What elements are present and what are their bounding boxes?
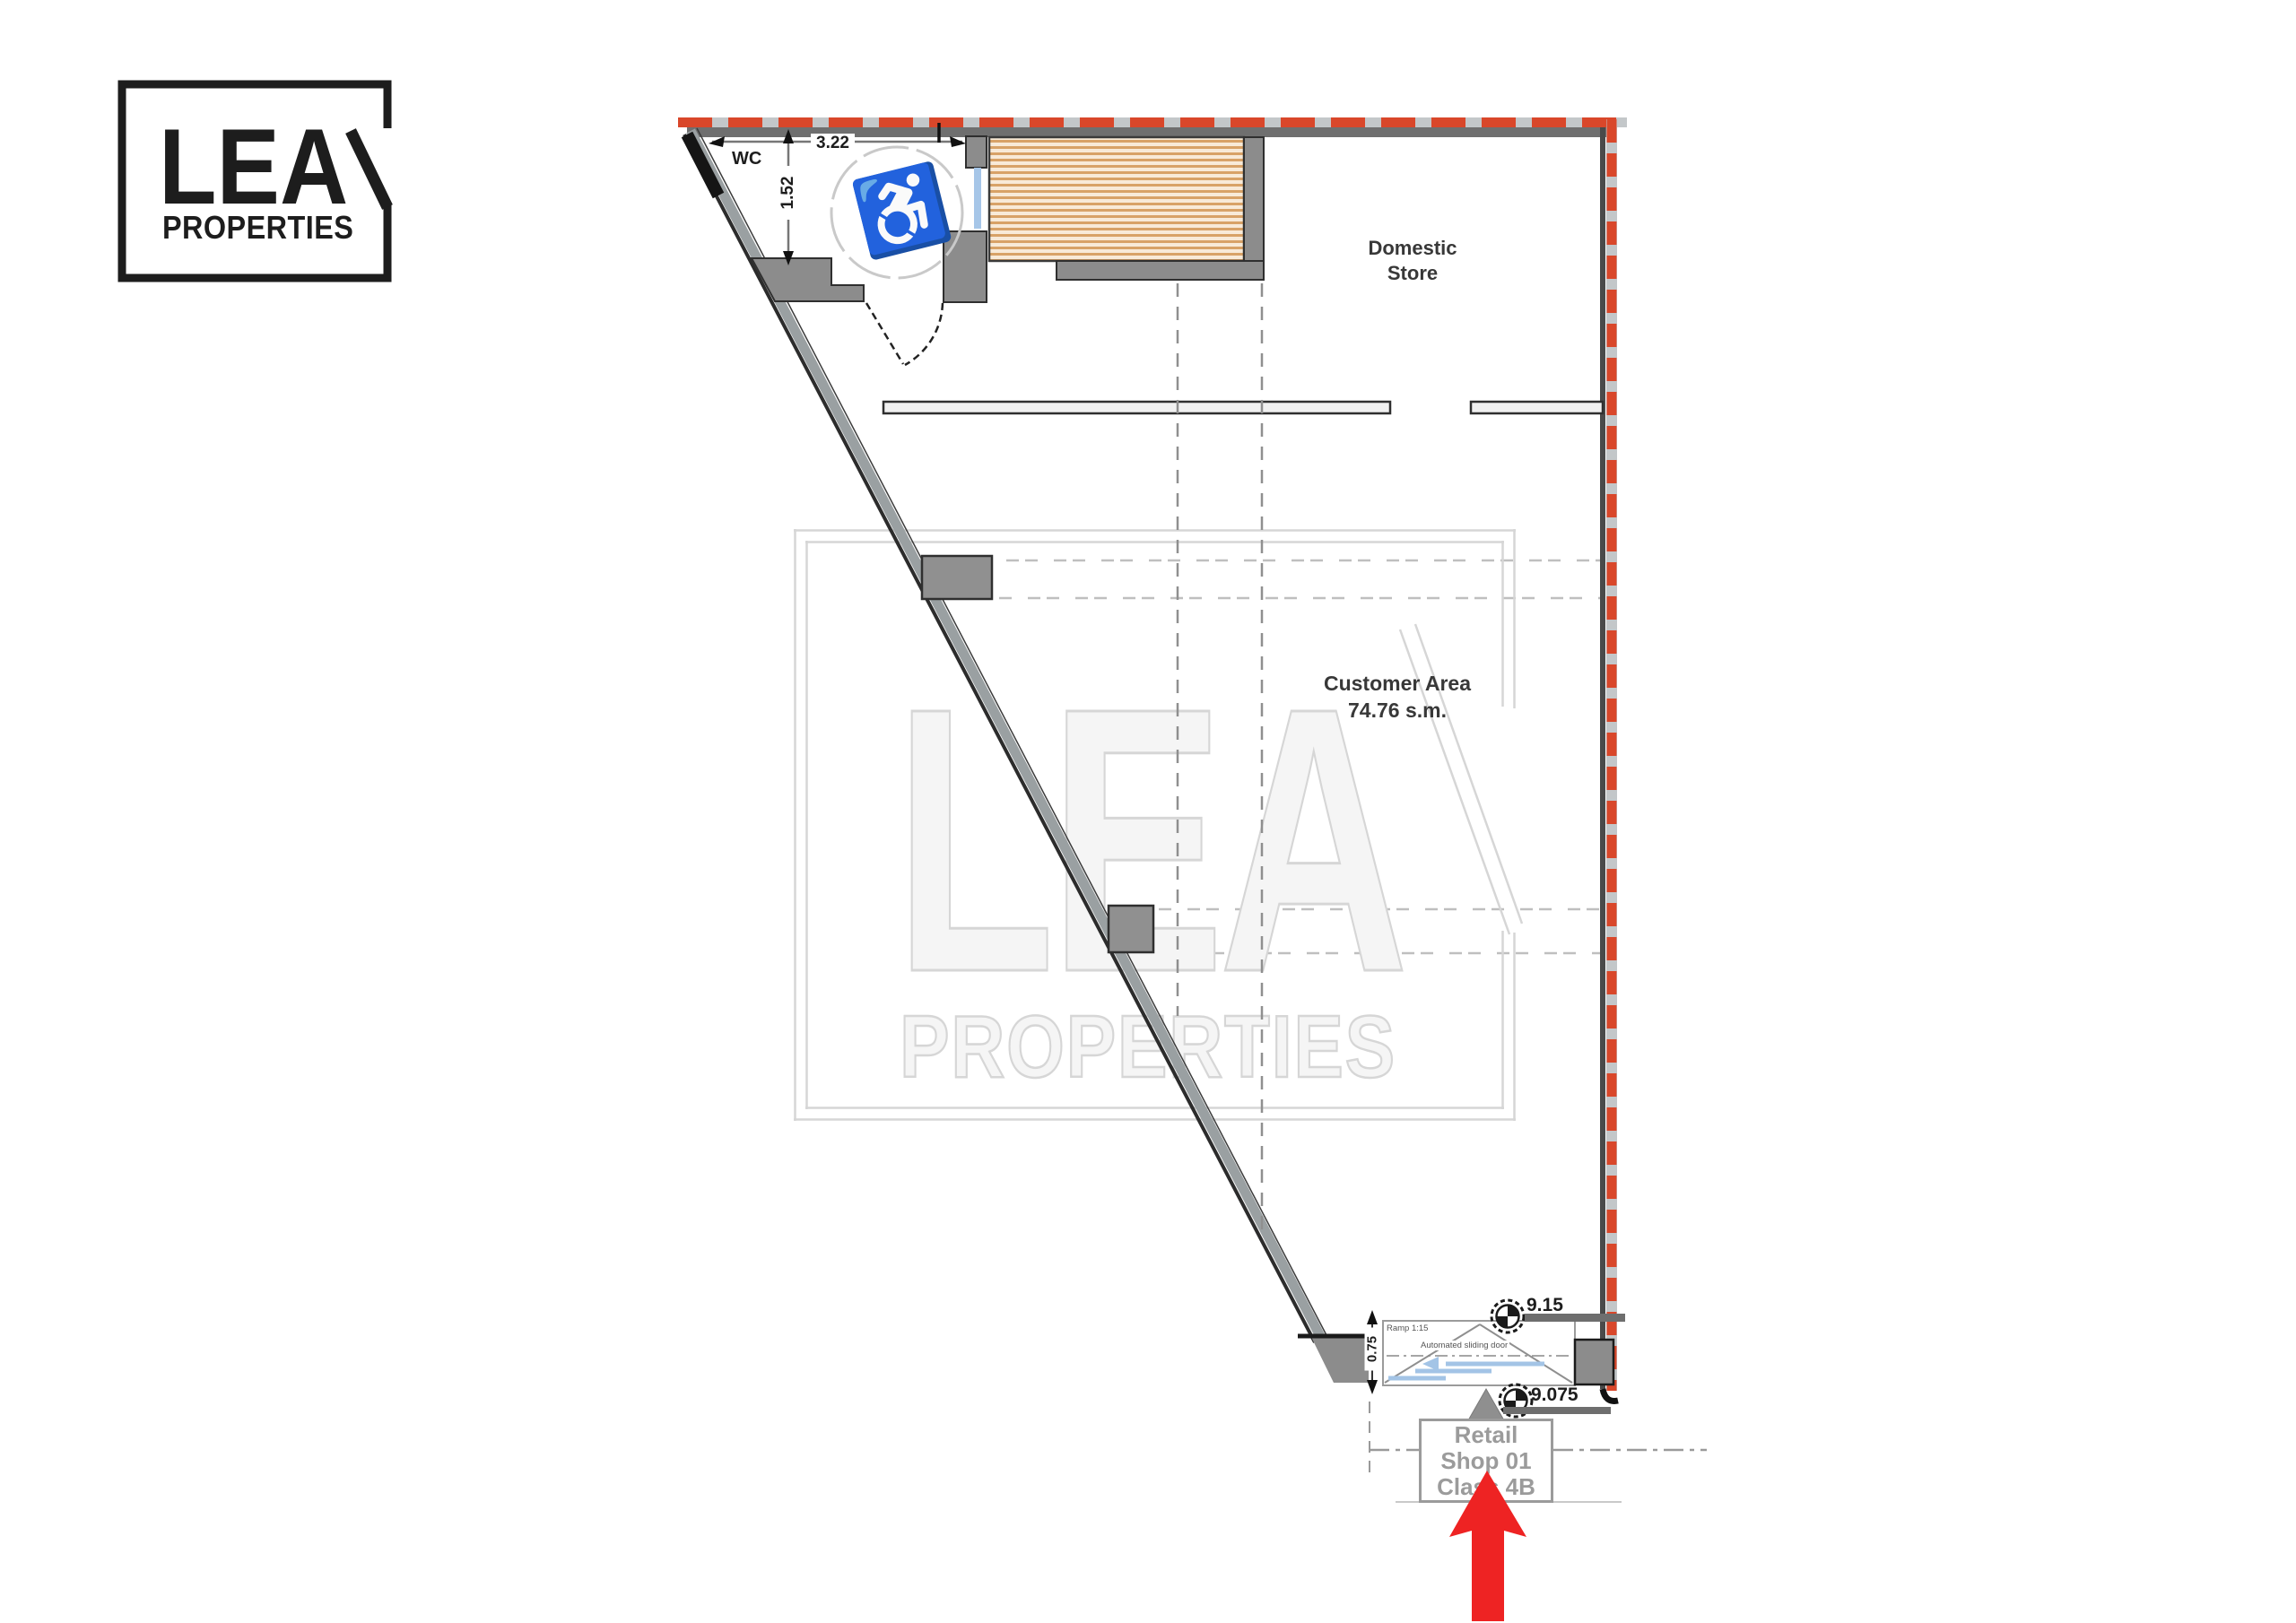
dim-lines-wc [709, 123, 966, 265]
boundary-dashes-bottom [1370, 1402, 1707, 1502]
boundary-right [1600, 119, 1618, 1401]
wc-width-dimension: 3.22 [811, 134, 855, 153]
dim-entrance [1367, 1310, 1378, 1394]
wc-depth-dimension: 1.52 [778, 166, 798, 220]
partition-wall [883, 402, 1603, 413]
watermark-brand-text: LEA [894, 653, 1403, 1029]
stair-hatch [989, 137, 1244, 261]
level-marker-lower [1500, 1384, 1611, 1417]
wc-glazing [974, 168, 981, 229]
unit-label-line2: Shop 01 [1422, 1448, 1551, 1474]
wc-room-label: WC [732, 149, 761, 169]
unit-label-line3: Class 4B [1422, 1474, 1551, 1500]
stair-walls [1057, 137, 1264, 280]
wheelchair-icon: ♿ [847, 163, 956, 259]
turning-circle [831, 147, 962, 278]
level-value-upper: 9.15 [1526, 1295, 1563, 1316]
domestic-store-label: Domestic Store [1335, 236, 1490, 286]
watermark-tagline-text: PROPERTIES [900, 1002, 1396, 1090]
domestic-store-line1: Domestic [1335, 236, 1490, 261]
level-marker-upper [1492, 1300, 1625, 1332]
watermark: LEA PROPERTIES [794, 529, 1516, 1121]
floorplan-page: LEA PROPERTIES [0, 0, 2296, 1623]
logo-brand-text: LEA [159, 113, 348, 221]
entrance [1383, 1321, 1613, 1385]
level-value-lower: 9.075 [1531, 1384, 1578, 1406]
sliding-door-leaves [1388, 1364, 1544, 1378]
ramp-label: Ramp 1:15 [1387, 1324, 1428, 1333]
logo-tagline-text: PROPERTIES [162, 212, 353, 244]
unit-label-box: Retail Shop 01 Class 4B [1419, 1419, 1553, 1503]
entrance-width-dimension: 0.75 [1365, 1328, 1380, 1371]
wc-walls [752, 136, 987, 302]
boundary-top [678, 117, 1627, 137]
entrance-pointer-icon [1468, 1389, 1504, 1420]
wc-door-swing [866, 303, 943, 365]
sliding-door-label: Automated sliding door [1419, 1341, 1509, 1350]
unit-label-line1: Retail [1422, 1422, 1551, 1448]
locator-arrow-icon [1449, 1471, 1526, 1621]
domestic-store-line2: Store [1335, 261, 1490, 286]
